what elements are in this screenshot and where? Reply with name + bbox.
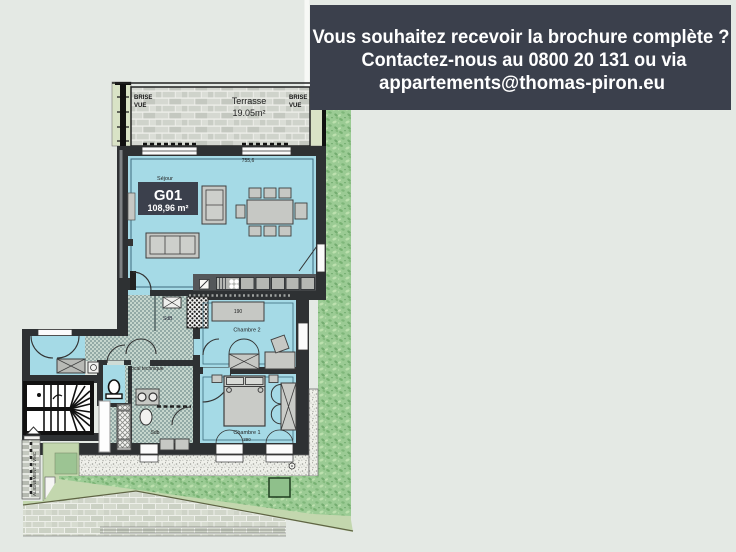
svg-text:Chambre 2: Chambre 2 [233, 328, 260, 334]
svg-text:appartements@thomas-piron.eu: appartements@thomas-piron.eu [379, 72, 665, 94]
svg-text:ALIGNEMENT 2 VMC: ALIGNEMENT 2 VMC [32, 451, 37, 496]
svg-text:Contactez-nous au 0800 20 131: Contactez-nous au 0800 20 131 ou via [362, 49, 687, 71]
svg-text:Sdb: Sdb [151, 430, 160, 436]
svg-text:755,6: 755,6 [242, 158, 255, 164]
svg-text:BRISE: BRISE [134, 95, 152, 101]
svg-text:108,96 m²: 108,96 m² [147, 203, 188, 213]
svg-text:Local technique: Local technique [128, 366, 163, 372]
svg-text:VUE: VUE [134, 103, 146, 109]
svg-text:BRISE: BRISE [289, 95, 307, 101]
svg-text:19.05m²: 19.05m² [232, 108, 265, 118]
svg-text:SdB: SdB [163, 316, 173, 322]
svg-text:Vous souhaitez recevoir la bro: Vous souhaitez recevoir la brochure comp… [313, 26, 730, 48]
svg-text:Terrasse: Terrasse [232, 96, 267, 106]
svg-text:390: 390 [243, 437, 251, 442]
svg-text:G01: G01 [154, 187, 182, 204]
svg-text:190: 190 [234, 309, 243, 315]
svg-text:VUE: VUE [289, 103, 301, 109]
svg-text:Séjour: Séjour [157, 176, 173, 182]
